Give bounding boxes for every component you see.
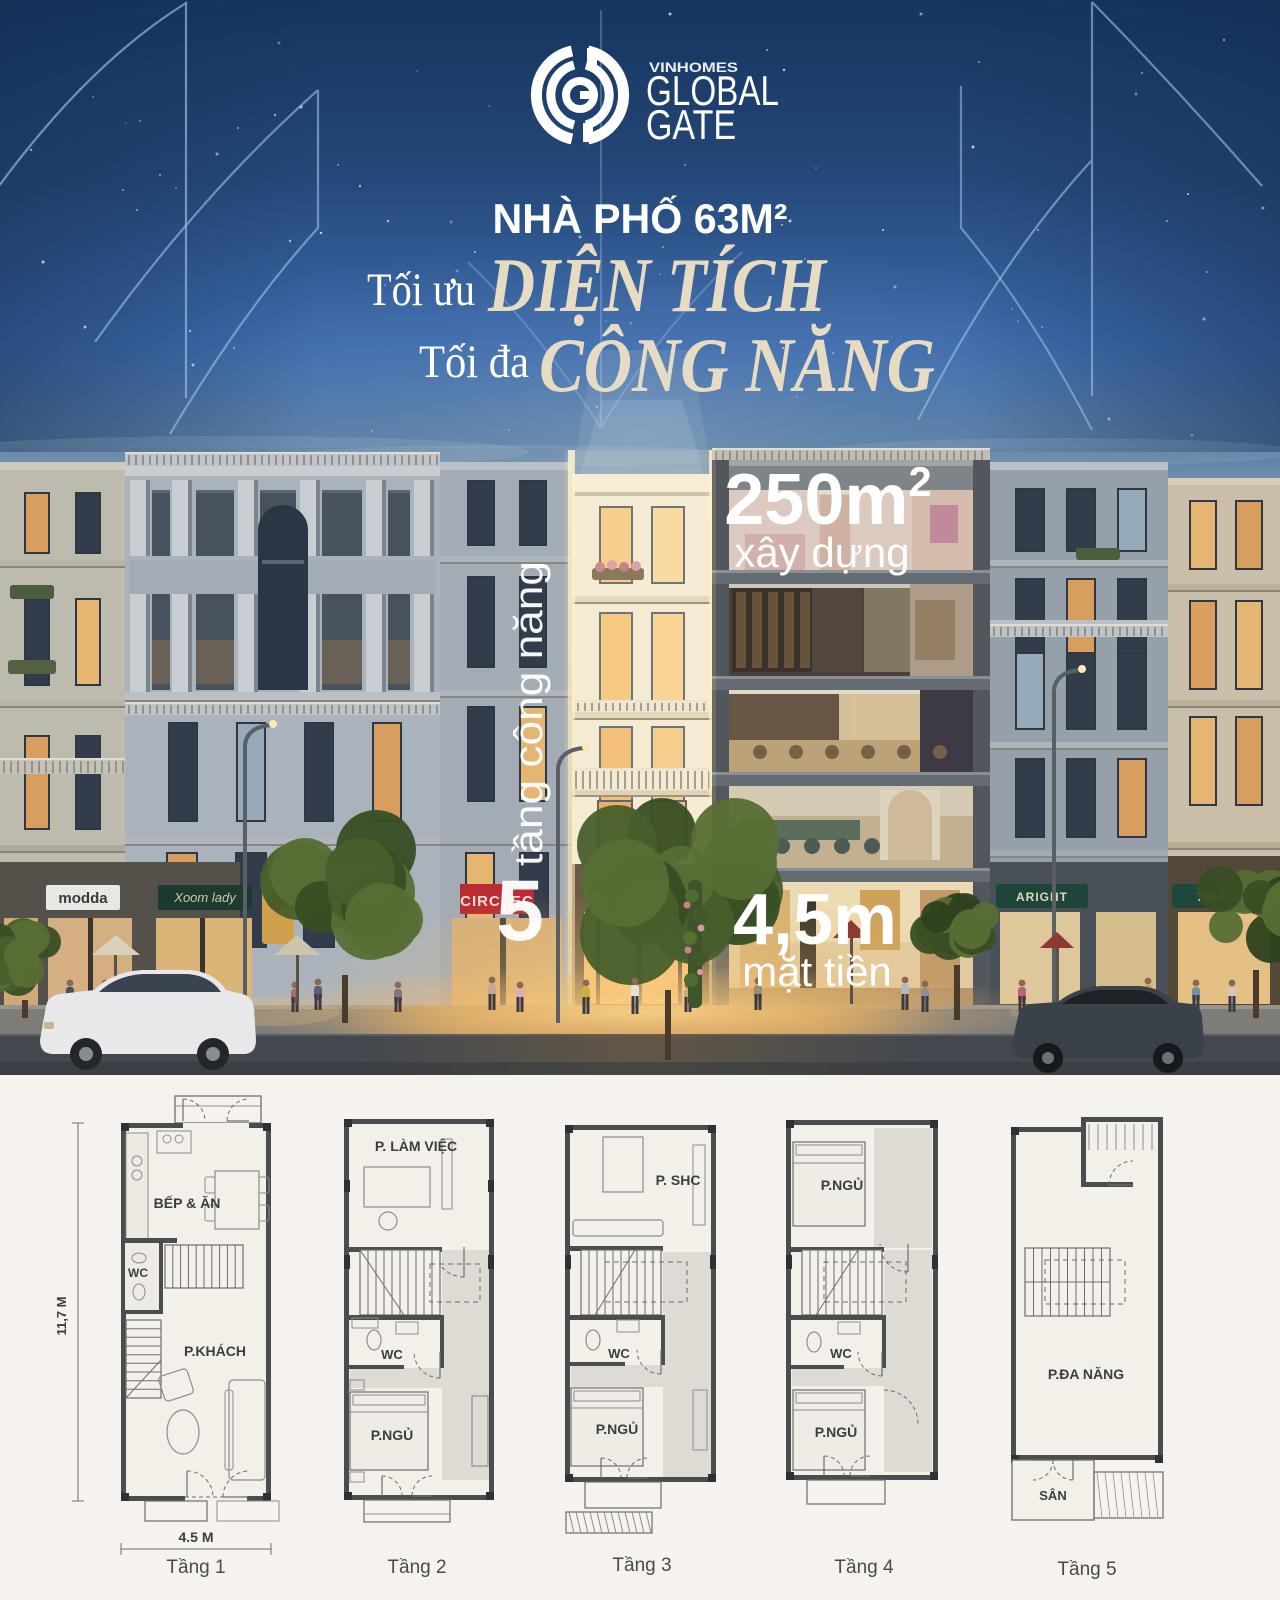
svg-text:P.ĐA NĂNG: P.ĐA NĂNG — [1048, 1366, 1124, 1382]
svg-text:Tối ưu: Tối ưu — [367, 264, 475, 316]
svg-text:Tầng 4: Tầng 4 — [834, 1557, 894, 1578]
svg-text:SÂN: SÂN — [1039, 1488, 1066, 1503]
svg-text:DIỆN TÍCH: DIỆN TÍCH — [487, 242, 828, 328]
svg-text:WC: WC — [128, 1266, 148, 1280]
svg-text:P.NGỦ: P.NGỦ — [815, 1423, 858, 1440]
svg-text:xây dựng: xây dựng — [734, 529, 909, 576]
svg-text:Tối đa: Tối đa — [419, 336, 529, 388]
svg-text:GATE: GATE — [646, 101, 736, 148]
svg-text:mặt tiền: mặt tiền — [742, 948, 891, 995]
svg-text:P.NGỦ: P.NGỦ — [821, 1176, 864, 1193]
svg-text:11,7 M: 11,7 M — [54, 1296, 69, 1335]
svg-text:NHÀ PHỐ 63M²: NHÀ PHỐ 63M² — [493, 194, 788, 242]
svg-text:Tầng 1: Tầng 1 — [166, 1557, 225, 1578]
svg-text:P. SHC: P. SHC — [656, 1172, 701, 1188]
svg-text:P. LÀM VIỆC: P. LÀM VIỆC — [375, 1137, 457, 1154]
svg-text:4.5 M: 4.5 M — [178, 1529, 213, 1545]
svg-text:WC: WC — [381, 1347, 403, 1362]
svg-text:Tầng 5: Tầng 5 — [1057, 1559, 1116, 1580]
svg-text:P.NGỦ: P.NGỦ — [371, 1426, 414, 1443]
svg-text:Tầng 3: Tầng 3 — [612, 1555, 671, 1576]
svg-text:250m2: 250m2 — [724, 458, 932, 540]
svg-text:5: 5 — [496, 863, 544, 959]
svg-text:P.NGỦ: P.NGỦ — [596, 1420, 639, 1437]
svg-text:P.KHÁCH: P.KHÁCH — [184, 1343, 246, 1359]
svg-text:Tầng 2: Tầng 2 — [387, 1557, 446, 1578]
svg-text:tầng công năng: tầng công năng — [507, 561, 551, 866]
svg-text:BẾP & ĂN: BẾP & ĂN — [154, 1195, 221, 1211]
svg-text:WC: WC — [830, 1346, 852, 1361]
svg-text:WC: WC — [608, 1346, 630, 1361]
